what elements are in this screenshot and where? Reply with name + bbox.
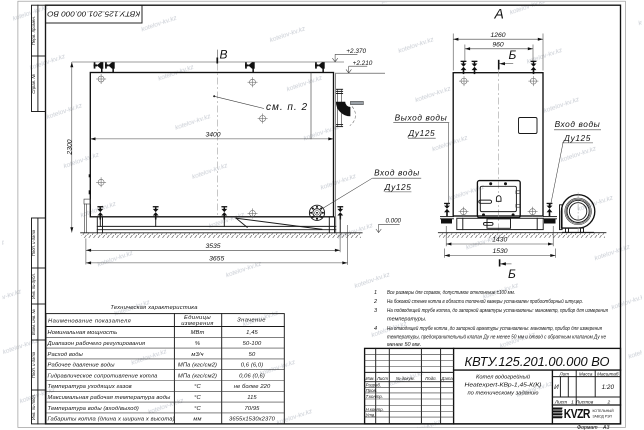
svg-text:измерения: измерения	[181, 321, 214, 327]
svg-text:Heatexpert-КВр-1,45-К(К): Heatexpert-КВр-1,45-К(К)	[465, 383, 542, 389]
svg-text:Ду125: Ду125	[384, 182, 412, 192]
svg-text:Ду125: Ду125	[563, 133, 591, 143]
svg-text:+2.210: +2.210	[353, 60, 373, 67]
svg-text:МПа (кгс/см2): МПа (кгс/см2)	[178, 363, 217, 369]
svg-text:МВт: МВт	[191, 330, 205, 336]
svg-text:Изм.: Изм.	[366, 376, 375, 381]
svg-text:А3: А3	[602, 425, 609, 430]
svg-text:%: %	[195, 341, 200, 347]
svg-text:1260: 1260	[490, 32, 505, 39]
svg-text:70/95: 70/95	[244, 406, 260, 412]
svg-text:0,06 (0,6): 0,06 (0,6)	[239, 373, 265, 379]
svg-text:На отводящей трубе котла ,до з: На отводящей трубе котла ,до запорной ар…	[387, 325, 602, 332]
svg-text:На подводящей трубе котла, до: На подводящей трубе котла, до запорной а…	[387, 307, 608, 314]
svg-text:1530: 1530	[492, 248, 507, 255]
svg-text:КВТУ.125.201.00.000 ВО: КВТУ.125.201.00.000 ВО	[46, 9, 140, 16]
svg-text:Ду125: Ду125	[407, 128, 435, 138]
svg-text:Выход воды: Выход воды	[395, 112, 448, 122]
svg-text:Справ. №: Справ. №	[31, 74, 36, 94]
svg-text:2300: 2300	[67, 139, 74, 155]
svg-text:Номинальная мощность: Номинальная мощность	[48, 330, 118, 336]
svg-text:2: 2	[606, 399, 610, 405]
svg-text:Подп. и дата: Подп. и дата	[31, 351, 36, 378]
svg-text:50: 50	[249, 352, 256, 358]
svg-text:Разраб.: Разраб.	[366, 383, 382, 388]
svg-text:3535: 3535	[205, 243, 220, 250]
svg-text:На боковой стенке котла в обла: На боковой стенке котла в области топочн…	[387, 298, 583, 305]
svg-text:В: В	[220, 48, 228, 62]
svg-text:Рабочее давление воды: Рабочее давление воды	[48, 363, 116, 369]
svg-text:№ докум.: № докум.	[396, 376, 415, 381]
svg-text:Расход воды: Расход воды	[48, 352, 84, 358]
svg-text:Б: Б	[509, 48, 517, 62]
svg-text:°С: °С	[194, 406, 201, 412]
svg-text:0,6 (6,0): 0,6 (6,0)	[241, 363, 264, 369]
svg-text:0.000: 0.000	[386, 218, 402, 225]
svg-text:1430: 1430	[492, 237, 507, 244]
svg-text:°С: °С	[194, 384, 201, 390]
svg-text:Масса: Масса	[579, 371, 593, 376]
svg-text:1:20: 1:20	[602, 384, 615, 391]
svg-text:Формат: Формат	[577, 425, 598, 430]
svg-text:Максимальная рабочая температу: Максимальная рабочая температура воды	[48, 395, 171, 401]
svg-text:см. п. 2: см. п. 2	[266, 102, 308, 113]
svg-text:2: 2	[373, 299, 377, 305]
svg-text:Техническая характеристика: Техническая характеристика	[110, 305, 198, 311]
svg-text:Инв. № подл.: Инв. № подл.	[31, 394, 36, 420]
svg-text:Дата: Дата	[440, 376, 453, 381]
svg-text:Взам. инв. №: Взам. инв. №	[31, 309, 36, 335]
svg-text:3655: 3655	[209, 256, 224, 263]
svg-text:°С: °С	[194, 395, 201, 401]
svg-text:50-100: 50-100	[243, 341, 262, 347]
svg-text:Вход воды: Вход воды	[555, 119, 601, 129]
svg-text:Б: Б	[508, 267, 516, 281]
svg-text:4: 4	[374, 326, 377, 332]
svg-text:Котел водогрейный: Котел водогрейный	[476, 374, 531, 381]
svg-text:по техническому заданию: по техническому заданию	[468, 391, 540, 397]
svg-text:Масштаб: Масштаб	[597, 371, 619, 376]
svg-text:1: 1	[374, 290, 377, 296]
svg-text:температуры, предохранительный: температуры, предохранительный клапан Ду…	[387, 334, 606, 341]
svg-text:КОТЕЛЬНЫЙ: КОТЕЛЬНЫЙ	[593, 409, 615, 413]
svg-text:1,45: 1,45	[246, 330, 258, 336]
svg-text:И: И	[554, 384, 559, 391]
svg-text:ЗАВОД РЭП: ЗАВОД РЭП	[593, 414, 613, 418]
svg-text:Лист: Лист	[376, 376, 388, 381]
svg-text:115: 115	[247, 395, 257, 401]
svg-text:Вход воды: Вход воды	[374, 168, 420, 178]
svg-text:+2.370: +2.370	[346, 48, 366, 55]
svg-text:Т.контр.: Т.контр.	[366, 394, 383, 399]
svg-text:м3/ч: м3/ч	[191, 352, 203, 358]
svg-text:Все размеры для справок, допус: Все размеры для справок, допустимое откл…	[387, 290, 515, 296]
svg-text:Наименование показателя: Наименование показателя	[48, 319, 131, 325]
svg-text:Температура уходящих газов: Температура уходящих газов	[48, 384, 132, 390]
svg-text:Утв.: Утв.	[366, 412, 376, 417]
svg-text:менее 50 мм.: менее 50 мм.	[387, 342, 421, 348]
svg-text:1: 1	[571, 399, 574, 405]
svg-text:Пров.: Пров.	[366, 388, 377, 393]
svg-text:KVZR: KVZR	[564, 406, 590, 421]
svg-text:Лист: Лист	[554, 399, 567, 405]
svg-text:мм: мм	[193, 417, 201, 423]
svg-text:Подп.: Подп.	[425, 376, 436, 381]
svg-text:КВТУ.125.201.00.000 ВО: КВТУ.125.201.00.000 ВО	[465, 354, 610, 369]
svg-text:Значение: Значение	[237, 318, 266, 324]
svg-text:3655х1530х2370: 3655х1530х2370	[229, 417, 276, 423]
svg-text:Подп. и дата: Подп. и дата	[31, 229, 36, 256]
svg-text:МПа (кгс/см2): МПа (кгс/см2)	[178, 373, 217, 379]
svg-text:Габариты котла (длина х ширина: Габариты котла (длина х ширина х высота)	[48, 417, 175, 423]
svg-text:Н.контр.: Н.контр.	[366, 407, 384, 412]
svg-text:Гидравлическое сопротивление к: Гидравлическое сопротивление котла	[48, 373, 159, 379]
svg-text:Температура воды (вход/выход): Температура воды (вход/выход)	[48, 406, 139, 412]
svg-text:Лит: Лит	[559, 371, 570, 376]
svg-text:не более 220: не более 220	[234, 384, 271, 390]
svg-text:3400: 3400	[205, 132, 220, 139]
svg-text:А: А	[494, 5, 504, 21]
svg-text:температуры.: температуры.	[387, 317, 426, 323]
svg-text:Диапазон рабочего регулировани: Диапазон рабочего регулирования	[47, 341, 146, 347]
svg-text:Инв. № дубл.: Инв. № дубл.	[31, 273, 36, 299]
svg-text:Перв. примен.: Перв. примен.	[31, 16, 36, 45]
svg-text:960: 960	[492, 42, 504, 49]
svg-text:Листов: Листов	[575, 399, 594, 405]
